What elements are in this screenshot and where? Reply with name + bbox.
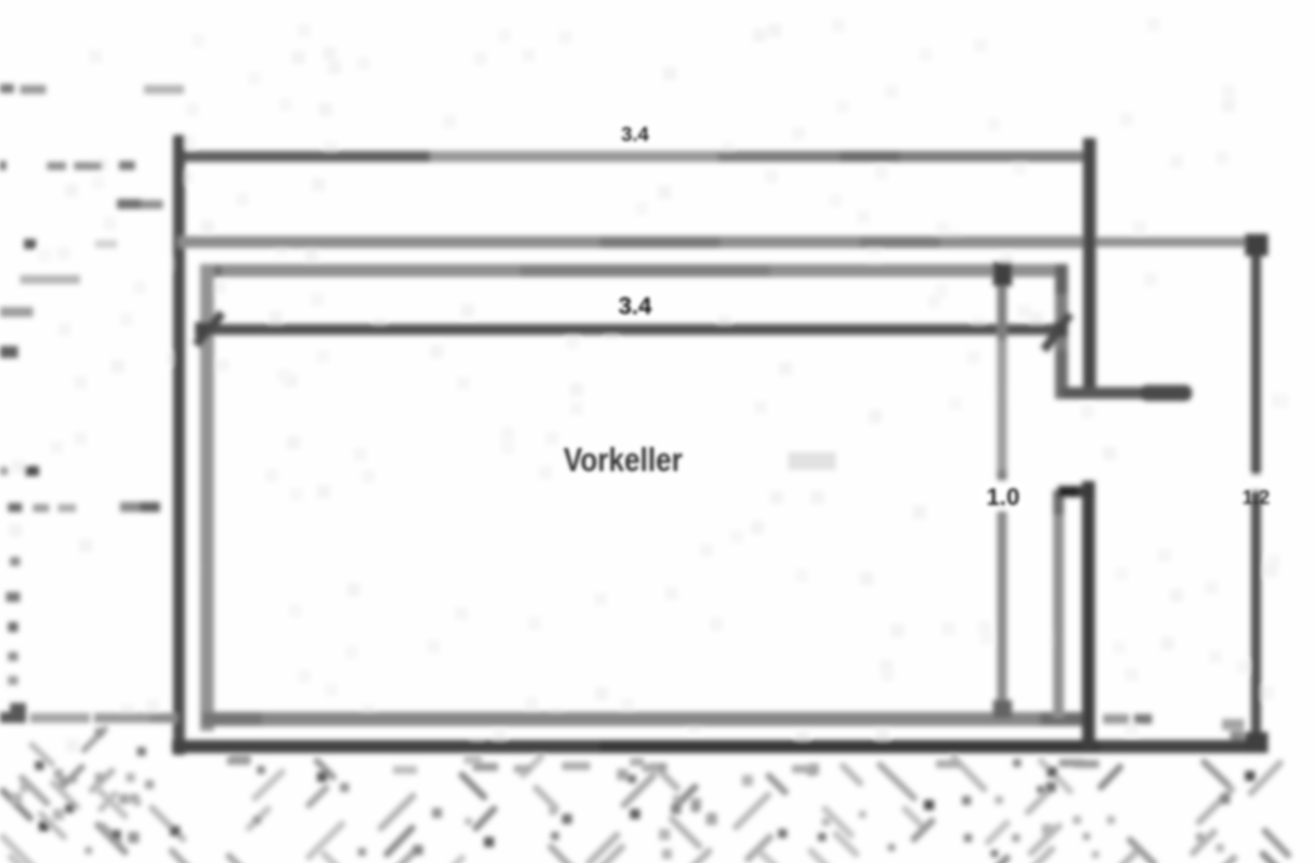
svg-text:1.2: 1.2 (1242, 487, 1270, 509)
svg-text:Vorkeller: Vorkeller (564, 441, 683, 478)
svg-text:1.0: 1.0 (986, 484, 1019, 511)
svg-text:3.4: 3.4 (621, 124, 650, 146)
svg-text:3.4: 3.4 (618, 293, 652, 320)
